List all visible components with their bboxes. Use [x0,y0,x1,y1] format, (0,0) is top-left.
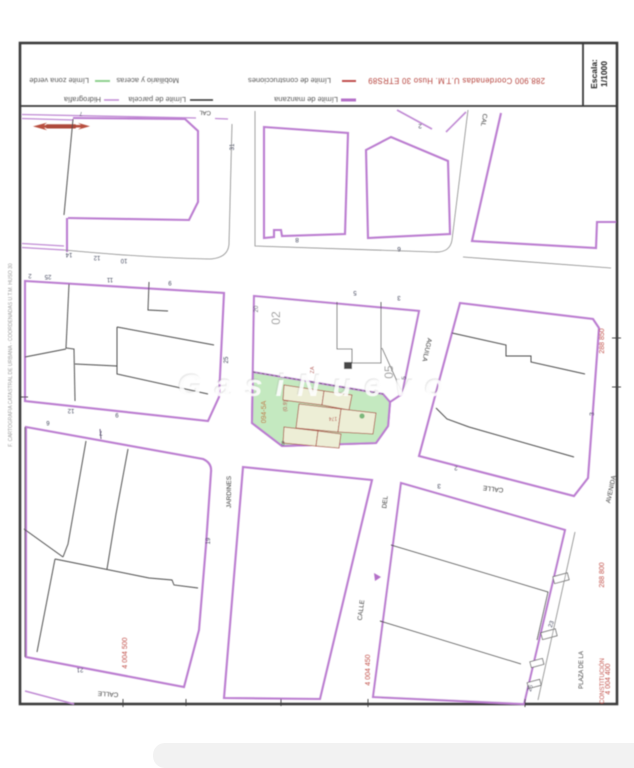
svg-text:Mobiliario y aceras: Mobiliario y aceras [116,76,179,85]
svg-text:25: 25 [224,356,230,363]
svg-text:4 004 400: 4 004 400 [605,663,612,694]
svg-text:2: 2 [28,272,32,278]
svg-text:14: 14 [65,251,72,257]
svg-text:25: 25 [44,273,51,279]
svg-text:Límite de manzana: Límite de manzana [273,95,338,104]
svg-text:8: 8 [295,236,299,243]
svg-text:Hidrografía: Hidrografía [63,95,101,104]
svg-text:10: 10 [120,257,127,263]
svg-text:20: 20 [254,305,260,312]
svg-text:6: 6 [46,419,50,425]
svg-text:PLAZA DE LA: PLAZA DE LA [579,651,585,689]
svg-text:CALLE: CALLE [357,599,367,621]
svg-text:094-5A: 094-5A [261,400,268,423]
svg-text:288 850: 288 850 [599,328,606,353]
svg-text:3: 3 [397,294,401,300]
svg-text:JARDINES: JARDINES [226,475,233,508]
svg-text:288.900 Coordenadas U.T.M. Hu: 288.900 Coordenadas U.T.M. Huso 30 ETRS8… [368,76,545,85]
svg-text:2: 2 [418,122,422,129]
svg-text:4 004 500: 4 004 500 [122,637,129,668]
svg-text:12: 12 [93,254,100,260]
svg-text:CAL: CAL [198,109,211,116]
svg-text:Límite de construcciones: Límite de construcciones [248,76,331,85]
svg-text:174: 174 [329,415,338,421]
svg-text:7: 7 [99,429,103,435]
svg-text:288 800: 288 800 [599,562,606,587]
svg-text:11: 11 [106,276,113,282]
svg-text:GasiNuevo: GasiNuevo [178,368,457,403]
svg-text:DEL: DEL [381,495,390,509]
svg-text:02: 02 [269,311,283,325]
svg-text:31: 31 [230,143,236,150]
svg-text:6: 6 [397,245,401,252]
svg-text:9: 9 [168,279,172,285]
svg-text:7: 7 [79,110,82,116]
svg-text:3: 3 [437,482,441,489]
svg-text:CALLE: CALLE [97,689,119,697]
svg-text:19: 19 [206,537,212,544]
svg-text:4 004 450: 4 004 450 [365,654,372,685]
svg-text:Límite de parcela: Límite de parcela [128,95,186,104]
svg-text:21: 21 [76,666,83,672]
svg-text:5: 5 [353,289,357,295]
svg-text:12: 12 [67,407,74,413]
svg-text:CAL: CAL [479,113,488,127]
svg-text:Límite zona verde: Límite zona verde [29,76,89,85]
svg-text:Escala:: Escala: [589,59,599,89]
svg-text:F. CARTOGRAFIA CATASTRAL DE UR: F. CARTOGRAFIA CATASTRAL DE URBANA - COO… [8,263,14,447]
svg-text:AGUILA: AGUILA [420,337,432,362]
svg-text:1/1000: 1/1000 [599,61,609,87]
svg-text:3: 3 [589,412,596,416]
svg-text:CALLE: CALLE [482,484,504,494]
